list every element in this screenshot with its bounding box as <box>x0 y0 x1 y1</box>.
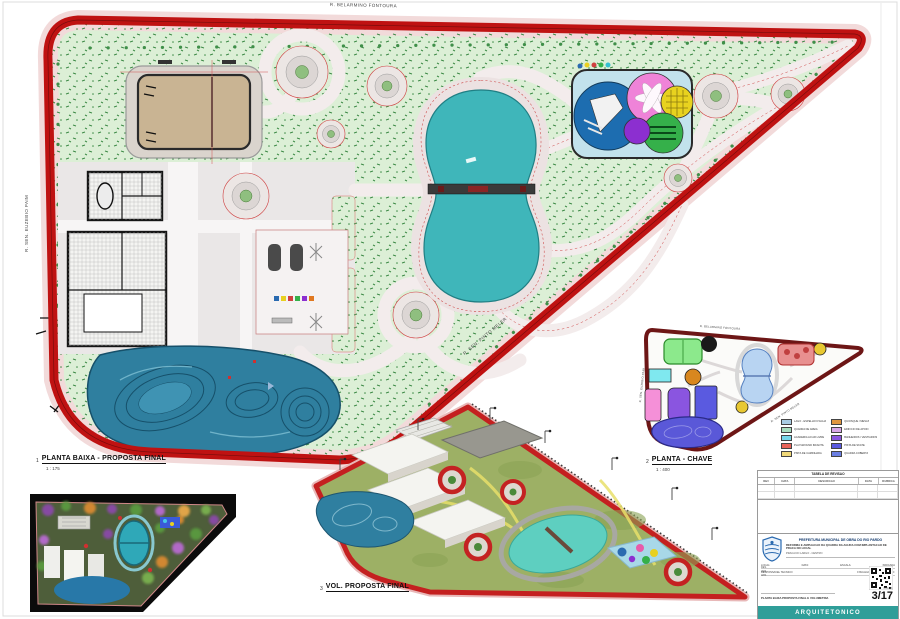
legend-item: QUADRA COBERTA <box>831 451 877 457</box>
legend-swatch <box>781 451 792 458</box>
legend-swatch <box>831 435 842 442</box>
key-building-1 <box>645 389 661 421</box>
legend-swatch <box>781 443 792 450</box>
legend-swatch <box>831 419 842 426</box>
project-address: PRACA DO LARGO - CENTRO <box>786 552 895 558</box>
revision-table-header: REV DATA DESCRICAO DATA RUBRICA <box>758 478 898 485</box>
revision-table: TABELA DE REVISAO REV DATA DESCRICAO DAT… <box>758 471 898 500</box>
sheet-number: FOLHA: 3/17 <box>872 587 893 602</box>
title-block: TABELA DE REVISAO REV DATA DESCRICAO DAT… <box>757 470 899 619</box>
legend-item: PLAYGROUND INFANTIL <box>781 443 826 449</box>
key-building-2 <box>668 388 690 421</box>
legend-label: QUADRA COBERTA <box>844 452 868 455</box>
legend-swatch <box>781 435 792 442</box>
legend-swatch <box>781 419 792 426</box>
legend-swatch <box>831 451 842 458</box>
key-building-3 <box>695 386 717 419</box>
legend-item: BANHEIROS / VESTIARIOS <box>831 435 877 441</box>
revision-empty-row <box>758 485 898 492</box>
legend-item: EDIFICIO DE APOIO <box>831 427 877 433</box>
sheet-content-title: PLANTA BAIXA PROPOSTA FINAL E VOLUMETRIA <box>761 593 835 600</box>
legend-label: PISTA DE CAMINHADA <box>794 452 822 455</box>
legend-label: BANHEIROS / VESTIARIOS <box>844 436 877 439</box>
key-playground <box>778 344 814 365</box>
plan-title: 1 PLANTA BAIXA - PROPOSTA FINAL <box>36 455 166 464</box>
legend-label: EDIFICIO DE APOIO <box>844 428 868 431</box>
key-scale: 1 : 400 <box>656 467 670 472</box>
legend-item: ACADEMIA AO AR LIVRE <box>781 435 826 441</box>
playground <box>572 63 693 159</box>
legend-item: QUIOSQUE / MESAS <box>831 419 877 425</box>
legend-label: ACADEMIA AO AR LIVRE <box>794 436 824 439</box>
legend-label: PISTA DE SKATE <box>844 444 865 447</box>
rev-col: DATA <box>775 478 795 484</box>
notes-box <box>758 500 898 534</box>
organization-name: PREFEITURA MUNICIPAL DE OBRA DO RIO PARD… <box>786 538 895 542</box>
drawing-sheet: R. BELARMINO FONTOURA R. SEN. EUZEBIO PA… <box>0 0 900 619</box>
legend-item: QUADRA DE AREIA <box>781 427 826 433</box>
sand-court <box>120 60 268 164</box>
key-planter <box>685 369 701 385</box>
plan-scale: 1 : 175 <box>46 466 60 471</box>
legend-column-2: QUIOSQUE / MESASEDIFICIO DE APOIOBANHEIR… <box>831 419 877 457</box>
key-plan-legend: LAGO - ESPELHO D'AGUAQUADRA DE AREIAACAD… <box>781 419 869 457</box>
key-title: 2 PLANTA - CHAVE <box>646 456 712 465</box>
legend-swatch <box>831 427 842 434</box>
skatepark <box>87 346 340 456</box>
outdoor-gym <box>256 230 348 334</box>
rev-col: RUBRICA <box>879 478 898 484</box>
legend-item: PISTA DE SKATE <box>831 443 877 449</box>
rev-col: DATA <box>859 478 879 484</box>
legend-swatch <box>781 427 792 434</box>
street-label-left: R. SEN. EUZEBIO PAIM <box>24 195 29 252</box>
drawn-fields: DES.VER.APR. <box>761 566 767 577</box>
municipal-crest-logo <box>761 536 783 562</box>
legend-column-1: LAGO - ESPELHO D'AGUAQUADRA DE AREIAACAD… <box>781 419 826 457</box>
revision-table-title: TABELA DE REVISAO <box>758 471 898 478</box>
legend-label: LAGO - ESPELHO D'AGUA <box>794 420 826 423</box>
key-skatepark <box>652 417 723 448</box>
legend-label: PLAYGROUND INFANTIL <box>794 444 824 447</box>
lake <box>419 81 544 312</box>
rev-col: REV <box>758 478 775 484</box>
legend-label: QUADRA DE AREIA <box>794 428 818 431</box>
key-gym <box>649 369 671 382</box>
legend-swatch <box>831 443 842 450</box>
legend-label: QUIOSQUE / MESAS <box>844 420 869 423</box>
rev-col: DESCRICAO <box>795 478 859 484</box>
legend-item: LAGO - ESPELHO D'AGUA <box>781 419 826 425</box>
page-number: 3/17 <box>872 590 893 602</box>
discipline-banner: ARQUITETONICO <box>758 606 898 619</box>
title-block-info: PREFEITURA MUNICIPAL DE OBRA DO RIO PARD… <box>758 534 898 606</box>
legend-item: PISTA DE CAMINHADA <box>781 451 826 457</box>
building-service <box>88 172 162 220</box>
building-main <box>68 232 166 346</box>
project-description: REFORMA E AMPLIACAO DA QUADRA DA AGUDA C… <box>786 544 895 551</box>
photo-render <box>30 494 236 612</box>
vol-title: 3 VOL. PROPOSTA FINAL <box>320 583 409 592</box>
revision-empty-row <box>758 492 898 499</box>
key-kiosk <box>701 336 717 352</box>
